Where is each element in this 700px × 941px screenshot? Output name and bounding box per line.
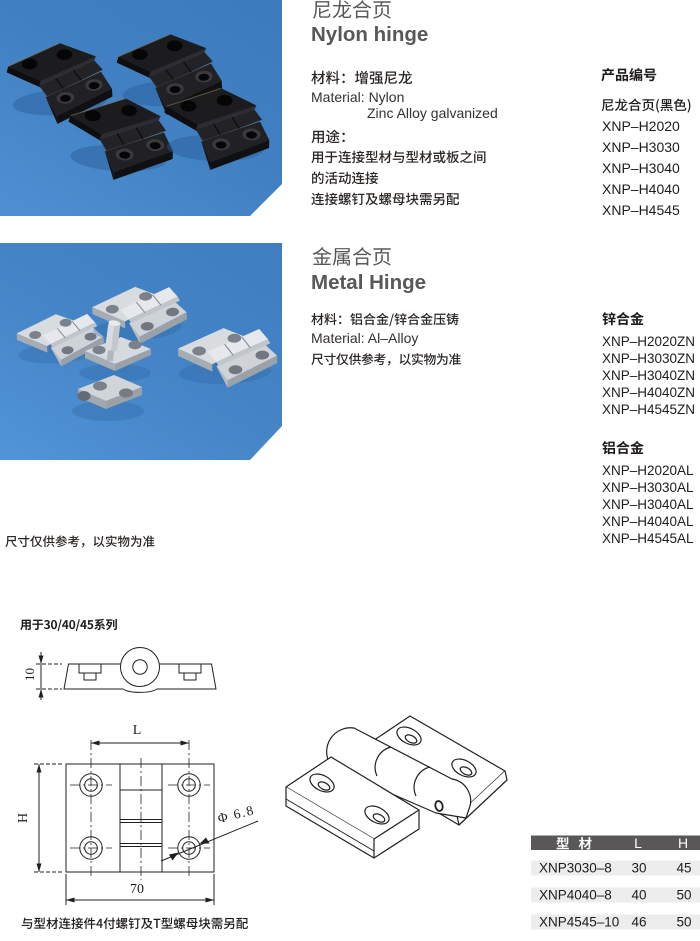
svg-text:30: 30 xyxy=(631,861,646,876)
svg-text:Metal Hinge: Metal Hinge xyxy=(311,271,426,294)
svg-text:XNP–H3040ZN: XNP–H3040ZN xyxy=(602,368,695,383)
svg-text:50: 50 xyxy=(676,915,691,930)
svg-text:XNP–H4545ZN: XNP–H4545ZN xyxy=(602,402,695,417)
svg-text:70: 70 xyxy=(130,882,144,897)
svg-text:Zinc Alloy galvanized: Zinc Alloy galvanized xyxy=(367,105,498,121)
svg-text:45: 45 xyxy=(676,861,691,876)
svg-text:XNP–H2020: XNP–H2020 xyxy=(602,118,680,134)
svg-text:H: H xyxy=(678,835,688,851)
svg-text:46: 46 xyxy=(631,915,646,930)
svg-text:XNP–H4545AL: XNP–H4545AL xyxy=(602,531,694,546)
svg-text:XNP–H2020ZN: XNP–H2020ZN xyxy=(602,334,695,349)
svg-text:XNP4545–10: XNP4545–10 xyxy=(539,915,619,930)
svg-text:Nylon hinge: Nylon hinge xyxy=(311,23,428,46)
svg-text:40: 40 xyxy=(631,888,646,903)
svg-text:L: L xyxy=(634,835,642,851)
svg-text:XNP–H3040: XNP–H3040 xyxy=(602,160,680,176)
svg-text:10: 10 xyxy=(22,668,37,681)
svg-text:XNP–H3030AL: XNP–H3030AL xyxy=(602,480,694,495)
svg-text:XNP–H3030ZN: XNP–H3030ZN xyxy=(602,351,695,366)
svg-text:XNP–H4040: XNP–H4040 xyxy=(602,181,680,197)
svg-text:XNP4040–8: XNP4040–8 xyxy=(539,888,612,903)
svg-text:XNP3030–8: XNP3030–8 xyxy=(539,861,612,876)
svg-text:XNP–H4040ZN: XNP–H4040ZN xyxy=(602,385,695,400)
svg-text:L: L xyxy=(133,723,142,738)
svg-text:XNP–H4545: XNP–H4545 xyxy=(602,202,680,218)
svg-text:XNP–H2020AL: XNP–H2020AL xyxy=(602,463,694,478)
svg-text:Material: Al–Alloy: Material: Al–Alloy xyxy=(311,330,418,346)
svg-text:Material: Nylon: Material: Nylon xyxy=(311,89,404,105)
svg-text:XNP–H4040AL: XNP–H4040AL xyxy=(602,514,694,529)
svg-text:50: 50 xyxy=(676,888,691,903)
svg-text:XNP–H3040AL: XNP–H3040AL xyxy=(602,497,694,512)
svg-text:Φ 6.8: Φ 6.8 xyxy=(216,802,256,826)
svg-text:H: H xyxy=(16,813,31,823)
svg-text:XNP–H3030: XNP–H3030 xyxy=(602,139,680,155)
